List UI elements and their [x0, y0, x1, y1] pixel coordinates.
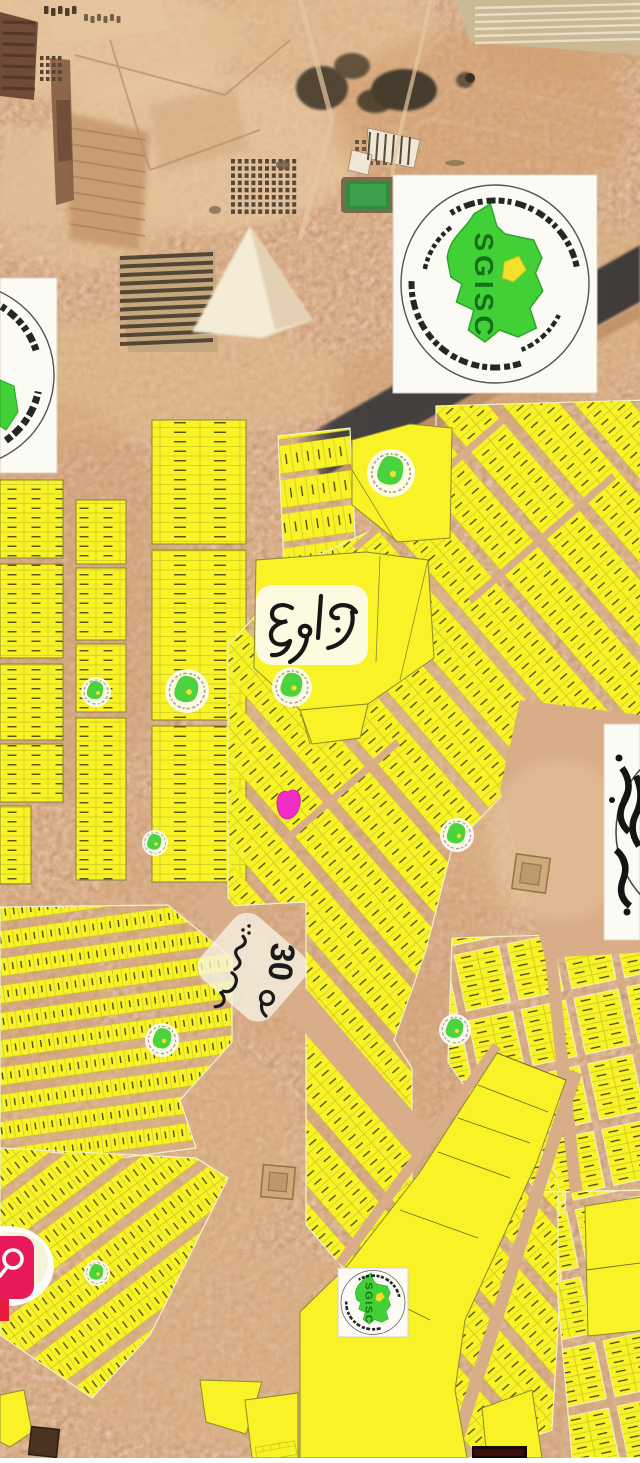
- svg-text:SGISC: SGISC: [469, 232, 498, 339]
- svg-text:30: 30: [260, 941, 302, 983]
- svg-text:SGISC: SGISC: [363, 1282, 374, 1324]
